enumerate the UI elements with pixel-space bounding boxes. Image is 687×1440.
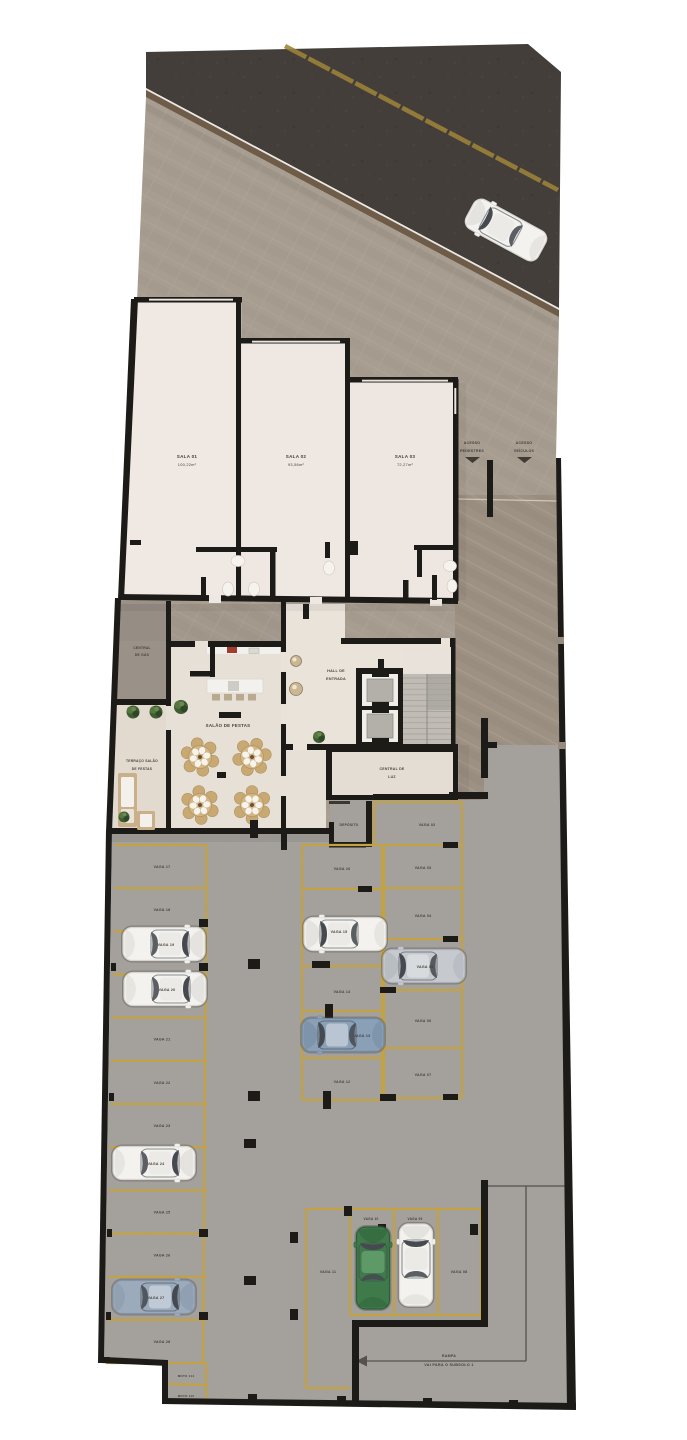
svg-text:VAGA 27: VAGA 27 [148,1296,165,1300]
svg-text:VEÍCULOS: VEÍCULOS [514,448,535,453]
svg-text:VAGA 08: VAGA 08 [451,1270,468,1274]
svg-text:VAGA 18: VAGA 18 [154,908,171,912]
svg-text:SALÃO DE FESTAS: SALÃO DE FESTAS [206,723,251,728]
svg-text:VAGA 20: VAGA 20 [159,988,176,992]
svg-text:DE FESTAS: DE FESTAS [132,767,153,771]
svg-text:VAGA 14: VAGA 14 [334,990,351,994]
svg-text:VAI PARA O SUBSOLO 1: VAI PARA O SUBSOLO 1 [424,1363,473,1367]
svg-text:93,56m²: 93,56m² [288,462,304,467]
svg-text:VAGA 21: VAGA 21 [154,1038,171,1042]
svg-text:ACESSO: ACESSO [516,441,533,445]
svg-text:VAGA 15: VAGA 15 [331,930,348,934]
svg-text:VAGA 19: VAGA 19 [158,943,175,947]
svg-text:VAGA 09: VAGA 09 [407,1217,422,1221]
svg-text:VAGA 22: VAGA 22 [154,1081,171,1085]
svg-text:MOTO 115: MOTO 115 [178,1394,195,1398]
svg-text:VAGA 06: VAGA 06 [415,1019,432,1023]
svg-text:VAGA 16: VAGA 16 [334,867,351,871]
svg-text:VAGA 17: VAGA 17 [154,865,171,869]
svg-text:RAMPA: RAMPA [442,1354,456,1358]
svg-text:SALA 03: SALA 03 [395,454,416,459]
svg-text:VAGA 13: VAGA 13 [354,1034,371,1038]
svg-text:LUZ: LUZ [388,775,396,779]
svg-text:VAGA 03: VAGA 03 [415,866,432,870]
svg-text:SALA 02: SALA 02 [286,454,307,459]
svg-text:VAGA 26: VAGA 26 [154,1254,171,1258]
svg-text:VAGA 11: VAGA 11 [320,1270,337,1274]
svg-text:TERRAÇO SALÃO: TERRAÇO SALÃO [126,758,158,763]
svg-text:VAGA 12: VAGA 12 [334,1080,351,1084]
svg-text:DE GÁS: DE GÁS [135,652,150,657]
svg-text:ENTRADA: ENTRADA [326,677,346,681]
svg-text:CENTRAL DE: CENTRAL DE [380,767,405,771]
svg-text:VAGA 23: VAGA 23 [154,1124,171,1128]
svg-text:VAGA 04: VAGA 04 [415,914,432,918]
svg-text:VAGA 10: VAGA 10 [363,1217,378,1221]
svg-text:ACESSO: ACESSO [464,441,481,445]
svg-text:HALL DE: HALL DE [327,669,345,673]
svg-text:CENTRAL: CENTRAL [133,646,151,650]
svg-text:VAGA 07: VAGA 07 [415,1073,432,1077]
svg-text:VAGA 25: VAGA 25 [154,1210,171,1214]
svg-text:SALA 01: SALA 01 [177,454,198,459]
svg-text:VAGA 05: VAGA 05 [417,965,434,969]
svg-text:100,22m²: 100,22m² [178,462,197,467]
svg-text:VAGA 24: VAGA 24 [148,1162,165,1166]
svg-text:VAGA 02: VAGA 02 [419,823,436,827]
svg-text:VAGA 28: VAGA 28 [154,1340,171,1344]
svg-text:72,27m²: 72,27m² [397,462,413,467]
svg-text:MOTO 114: MOTO 114 [178,1374,195,1378]
svg-text:DEPÓSITO: DEPÓSITO [340,822,359,827]
